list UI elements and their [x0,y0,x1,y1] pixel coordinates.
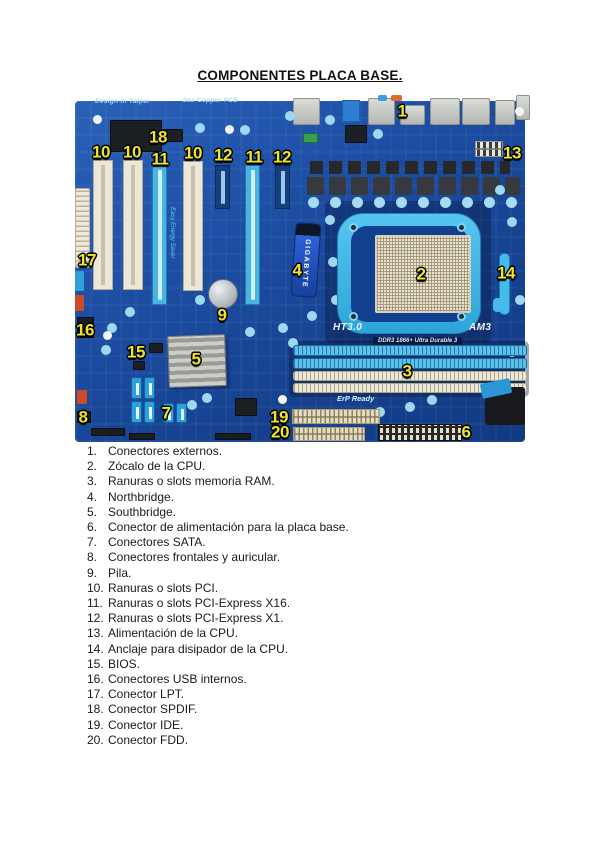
list-item: 15.BIOS. [87,657,349,672]
list-item: 7.Conectores SATA. [87,535,349,550]
callout-17: 17 [78,252,96,269]
list-item-number: 16. [87,672,108,687]
ram-slot [293,345,527,356]
bios-chip [133,361,145,370]
list-item-number: 8. [87,550,108,565]
callout-18: 18 [149,129,167,146]
sata-port [131,377,142,399]
callout-12a: 12 [214,147,232,164]
list-item-number: 4. [87,490,108,505]
pcie-x1-slot [215,165,230,209]
sata-port [144,401,155,423]
pci-slot [123,160,143,290]
gigabyte-logo-text: GIGABYTE [301,239,311,289]
io-port-block [516,95,530,120]
sata-port [144,377,155,399]
list-item: 12.Ranuras o slots PCI-Express X1. [87,611,349,626]
callout-10c: 10 [184,145,202,162]
fdd-connector [293,427,365,441]
list-item: 11.Ranuras o slots PCI-Express X16. [87,596,349,611]
list-item-number: 12. [87,611,108,626]
bios-chip [149,343,163,353]
heatsink-anchor [499,253,510,315]
list-item: 10.Ranuras o slots PCI. [87,581,349,596]
list-item-number: 17. [87,687,108,702]
list-item-text: Conector FDD. [108,733,188,748]
list-item-number: 19. [87,718,108,733]
list-item: 4.Northbridge. [87,490,349,505]
list-item-text: Ranuras o slots memoria RAM. [108,474,275,489]
list-item-number: 2. [87,459,108,474]
callout-16: 16 [76,322,94,339]
list-item-text: Conectores externos. [108,444,222,459]
list-item-number: 6. [87,520,108,535]
ide-connector [292,409,380,424]
vrm-chokes [307,177,520,195]
pcie-x1-slot [275,165,290,209]
list-item: 14.Anclaje para disipador de la CPU. [87,642,349,657]
callout-4: 4 [293,262,302,279]
motherboard-figure: GIGABYTE Design In Taipei 2oz Copper PCB… [75,95,530,443]
list-item-text: Conector de alimentación para la placa b… [108,520,349,535]
list-item-number: 14. [87,642,108,657]
callout-14: 14 [497,265,515,282]
list-item-text: Conectores SATA. [108,535,206,550]
io-port-block [293,98,320,125]
document-page: COMPONENTES PLACA BASE. [0,0,600,848]
pcie-x16-slot [245,165,260,305]
ht3-text: HT3.0 [333,322,362,333]
capacitors [195,123,205,133]
callout-3: 3 [403,363,412,380]
list-item-number: 18. [87,702,108,717]
list-item-text: Ranuras o slots PCI. [108,581,218,596]
callout-9: 9 [218,307,227,324]
callout-10b: 10 [123,144,141,161]
list-item-number: 9. [87,566,108,581]
callout-12b: 12 [273,149,291,166]
audio-jack-blue [378,95,387,101]
list-item-text: Zócalo de la CPU. [108,459,205,474]
cmos-battery [208,279,238,309]
frame-screw [349,312,358,321]
list-item: 3.Ranuras o slots memoria RAM. [87,474,349,489]
mounting-holes [93,115,102,124]
callout-5: 5 [192,351,201,368]
list-item: 5.Southbridge. [87,505,349,520]
callout-7: 7 [162,405,171,422]
list-item-text: Conector LPT. [108,687,184,702]
atx-power-connector [378,424,462,441]
vrm-mosfets [310,161,510,174]
cpu-retention-frame [337,213,481,334]
list-item: 19.Conector IDE. [87,718,349,733]
pcie-x16-slot [152,165,167,305]
sata-port [131,401,142,423]
callout-11a: 11 [152,151,169,168]
cpu-socket-base [351,226,468,322]
pci-slot [183,161,203,291]
bottom-pin-header [129,433,155,440]
list-item: 18.Conector SPDIF. [87,702,349,717]
list-item-text: Alimentación de la CPU. [108,626,238,641]
list-item: 17.Conector LPT. [87,687,349,702]
callout-1: 1 [398,103,407,120]
capacitor-row [308,197,319,208]
list-item-text: Ranuras o slots PCI-Express X16. [108,596,290,611]
list-item: 16.Conectores USB internos. [87,672,349,687]
erp-ready-text: ErP Ready [337,394,374,403]
list-item: 6.Conector de alimentación para la placa… [87,520,349,535]
green-header [303,133,318,143]
component-list: 1.Conectores externos. 2.Zócalo de la CP… [87,444,349,748]
list-item: 2.Zócalo de la CPU. [87,459,349,474]
list-item: 9.Pila. [87,566,349,581]
design-text: Design In Taipei [95,98,149,105]
io-port-block [430,98,460,125]
list-item-text: Pila. [108,566,131,581]
callout-11b: 11 [246,149,263,166]
sata-port [176,403,187,423]
audio-jack-orange [391,95,402,101]
list-item: 20.Conector FDD. [87,733,349,748]
io-port-block [368,98,395,125]
left-edge-connector [75,295,84,311]
page-title: COMPONENTES PLACA BASE. [0,68,600,83]
list-item: 13.Alimentación de la CPU. [87,626,349,641]
usb-port [342,100,360,122]
callout-15: 15 [127,344,145,361]
list-item-number: 1. [87,444,108,459]
list-item-text: Conector SPDIF. [108,702,197,717]
left-edge-connector [75,271,84,291]
list-item: 8.Conectores frontales y auricular. [87,550,349,565]
callout-6: 6 [462,424,471,441]
callout-8: 8 [79,409,88,426]
list-item-number: 5. [87,505,108,520]
corner-component [485,387,525,425]
bottom-pin-header [215,433,251,440]
callout-13: 13 [503,145,521,162]
list-item-number: 7. [87,535,108,550]
list-item-text: Conector IDE. [108,718,183,733]
list-item-text: Southbridge. [108,505,176,520]
callout-2: 2 [417,266,426,283]
super-io-chip [235,398,257,416]
list-item-number: 10. [87,581,108,596]
list-item-number: 13. [87,626,108,641]
pci-slot [93,160,113,290]
front-audio-header [77,390,87,404]
list-item: 1.Conectores externos. [87,444,349,459]
callout-10a: 10 [92,144,110,161]
list-item-number: 11. [87,596,108,611]
io-port-block [495,100,515,125]
list-item-number: 20. [87,733,108,748]
list-item-text: Ranuras o slots PCI-Express X1. [108,611,283,626]
frame-screw [457,223,466,232]
list-item-text: Northbridge. [108,490,174,505]
energy-saver-text: Easy Energy Saver [169,207,175,258]
io-port-block [462,98,490,125]
copper-text: 2oz Copper PCB [183,97,238,104]
front-panel-pins [91,428,125,436]
list-item-number: 15. [87,657,108,672]
frame-screw [349,223,358,232]
callout-20: 20 [271,424,289,441]
cpu-power-connector [475,141,503,157]
list-item-text: Anclaje para disipador de la CPU. [108,642,288,657]
audio-chip [345,125,367,143]
am3-text: AM3 [469,322,491,333]
list-item-text: Conectores frontales y auricular. [108,550,280,565]
frame-screw [457,312,466,321]
list-item-text: BIOS. [108,657,140,672]
list-item-number: 3. [87,474,108,489]
list-item-text: Conectores USB internos. [108,672,247,687]
